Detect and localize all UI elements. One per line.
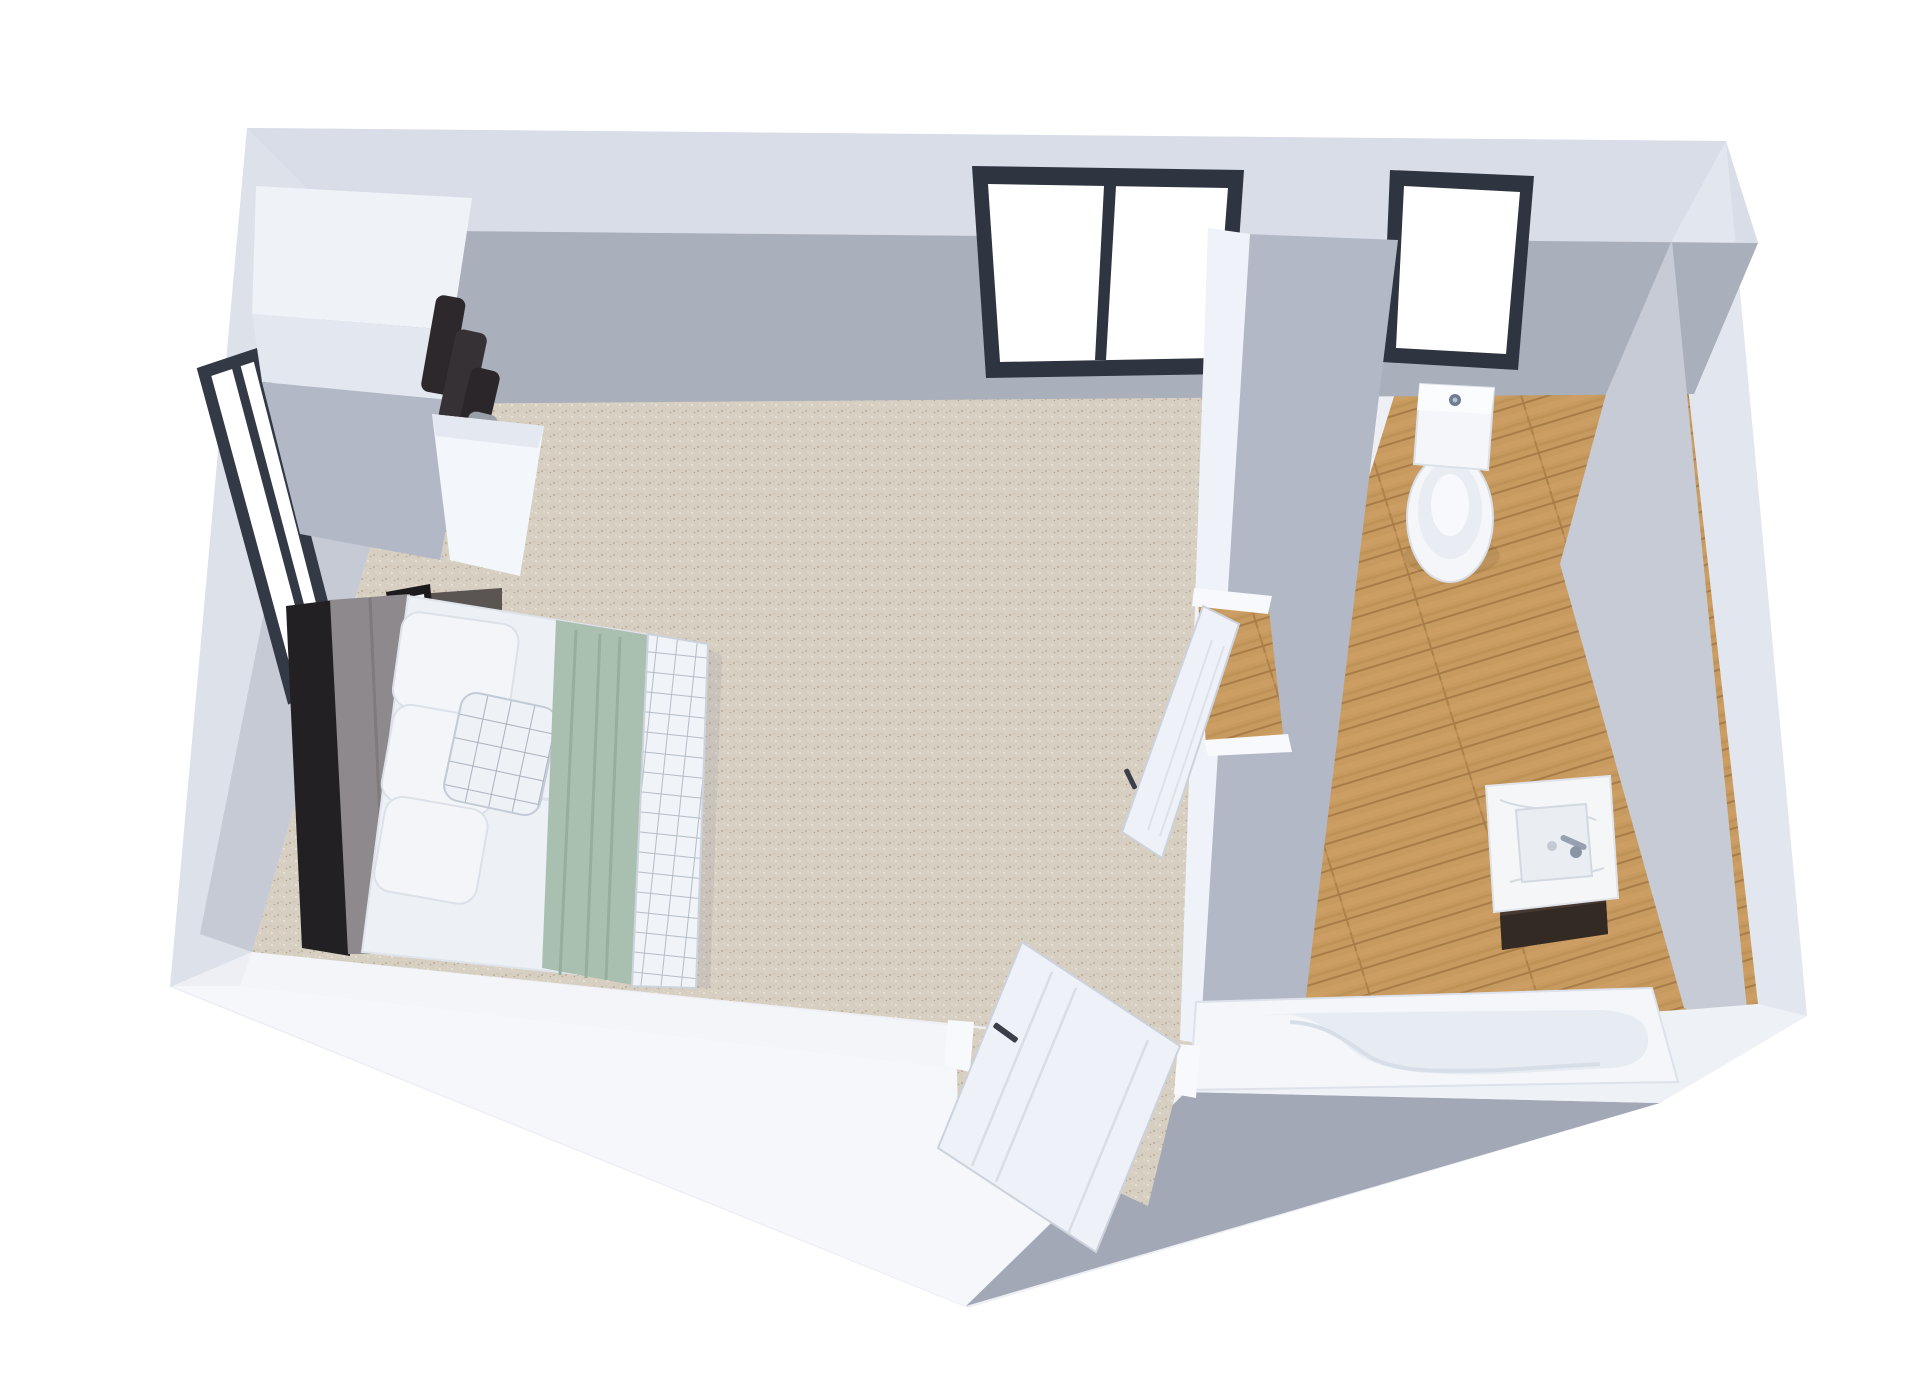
- sink-drain: [1547, 841, 1557, 851]
- flush-button-center: [1453, 398, 1458, 403]
- faucet-handle: [1570, 846, 1582, 858]
- vanity: [1486, 776, 1618, 950]
- floor-plan-canvas: [0, 0, 1920, 1377]
- bed: [286, 594, 722, 988]
- bedroom-window: [972, 166, 1244, 378]
- toilet-lid-center: [1431, 474, 1469, 536]
- bathroom-window: [1382, 170, 1534, 370]
- floor-plan-render: [0, 0, 1920, 1377]
- bathtub: [1190, 988, 1678, 1090]
- entry-door-jamb: [944, 1020, 974, 1072]
- toilet: [1404, 384, 1500, 582]
- window-glass: [1396, 186, 1520, 354]
- pillow-white: [371, 794, 490, 907]
- pillow-checkered: [441, 690, 560, 818]
